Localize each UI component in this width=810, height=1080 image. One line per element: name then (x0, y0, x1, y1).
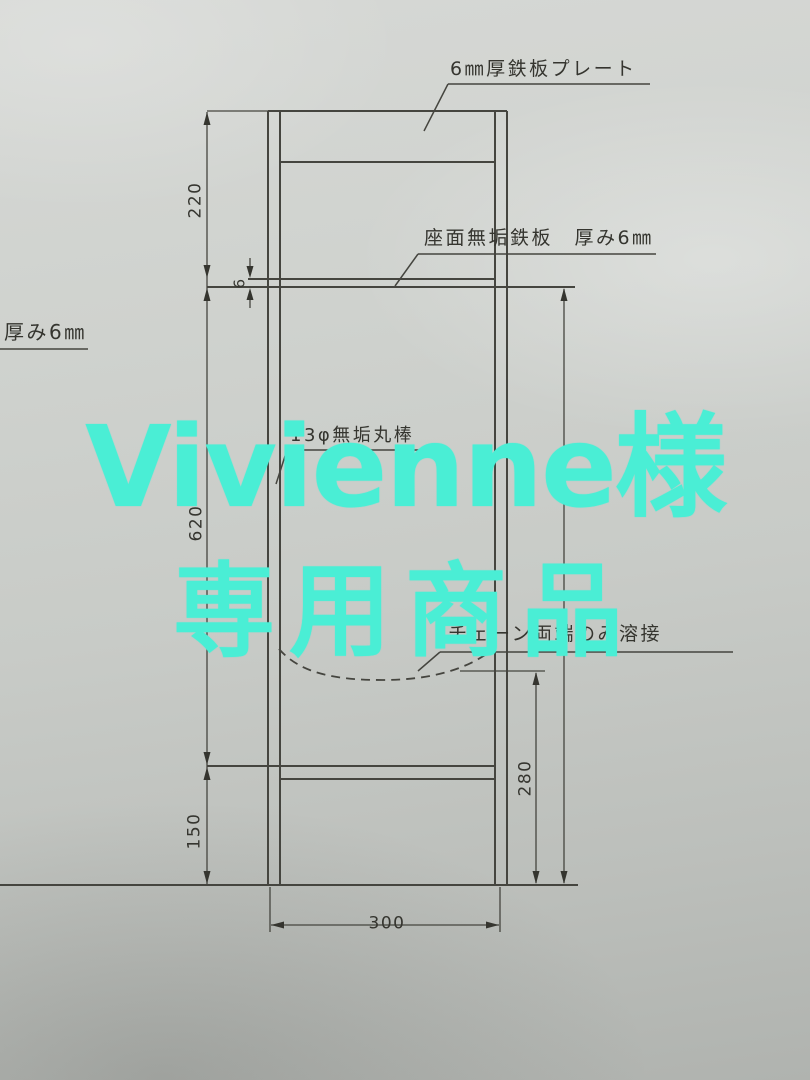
photographed-blueprint: 6㎜厚鉄板プレート 座面無垢鉄板 厚み6㎜ 厚み6㎜ 13φ無垢丸棒 チェーン両… (0, 0, 810, 1080)
leader-lines (0, 84, 733, 671)
left-thickness-label: 厚み6㎜ (4, 322, 87, 342)
dim-620: 620 (189, 505, 206, 542)
dim-280: 280 (518, 760, 535, 797)
rod-label: 13φ無垢丸棒 (290, 427, 414, 445)
seat-plate-label: 座面無垢鉄板 厚み6㎜ (424, 229, 654, 248)
dim-220: 220 (188, 182, 205, 219)
dim-300: 300 (369, 916, 406, 933)
dim-150: 150 (187, 813, 204, 850)
top-plate-label: 6㎜厚鉄板プレート (450, 60, 637, 79)
dim-6: 6 (233, 277, 248, 288)
chain-weld-label: チェーン両端のみ溶接 (448, 625, 662, 644)
